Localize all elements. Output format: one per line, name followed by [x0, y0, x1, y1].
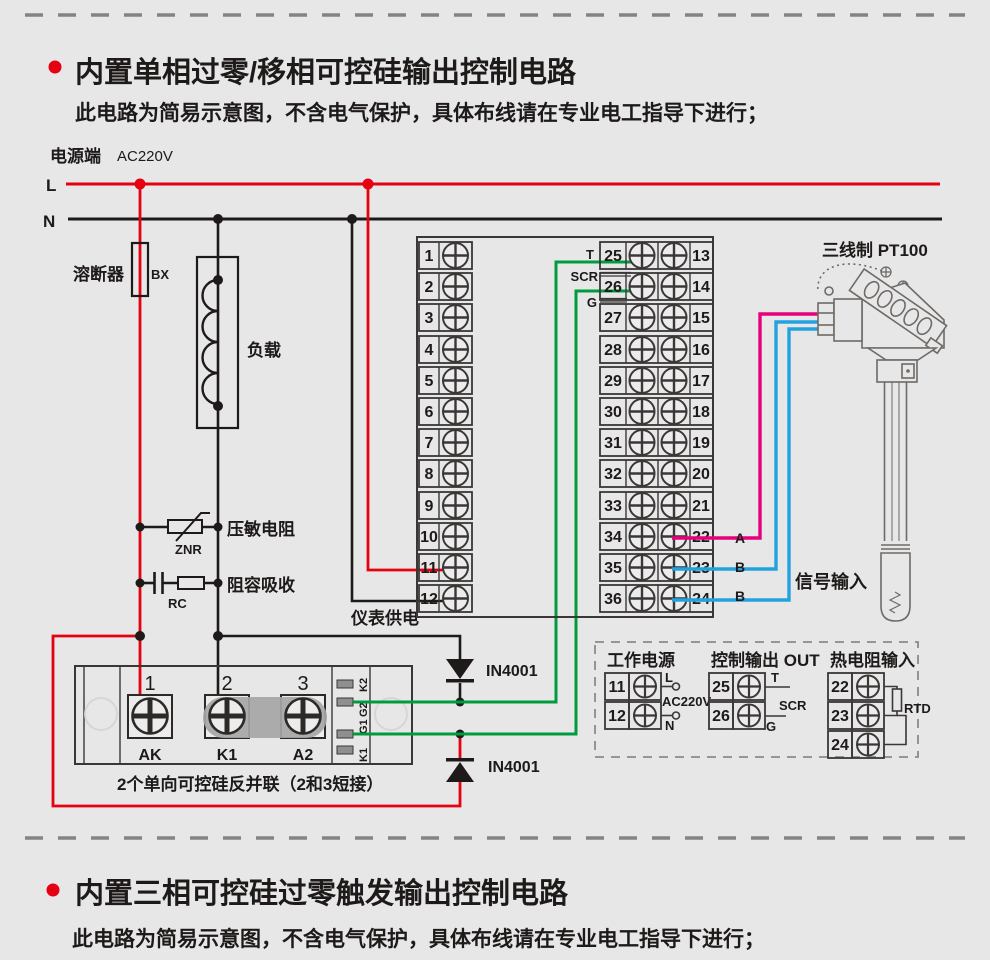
module-pin-a2: A2 [293, 747, 314, 764]
svg-text:31: 31 [604, 435, 622, 452]
varistor-label: 压敏电阻 [227, 519, 295, 539]
svg-text:20: 20 [692, 466, 710, 483]
varistor-code: ZNR [175, 542, 202, 557]
svg-text:9: 9 [425, 498, 434, 515]
label-g: G [587, 295, 597, 310]
section2-title: 内置三相可控硅过零触发输出控制电路 [75, 876, 569, 910]
wire-b1-label: B [735, 559, 745, 575]
legend-output: 控制输出 OUT 25 26 T SCR G [709, 650, 820, 734]
terminal-block: 12513 22614 32715 42816 52917 63018 7311… [417, 237, 713, 617]
bullet-icon [47, 884, 60, 897]
load-label: 负载 [247, 340, 281, 360]
svg-text:19: 19 [692, 435, 710, 452]
svg-text:6: 6 [425, 404, 434, 421]
section1-header: 内置单相过零/移相可控硅输出控制电路 此电路为简易示意图，不含电气保护，具体布线… [49, 55, 769, 125]
legend-power: 工作电源 11 12 L AC220V N [605, 650, 711, 733]
signal-input-label: 信号输入 [795, 571, 867, 592]
module-note: 2个单向可控硅反并联（2和3短接） [117, 774, 383, 794]
power-voltage-label: AC220V [117, 148, 173, 165]
legend-output-title: 控制输出 OUT [711, 650, 820, 670]
module-pin-ak: AK [138, 747, 162, 764]
svg-text:4: 4 [425, 342, 434, 359]
fuse-label: 溶断器 [73, 264, 125, 284]
svg-text:10: 10 [420, 529, 438, 546]
svg-text:25: 25 [604, 248, 622, 265]
svg-text:27: 27 [604, 310, 622, 327]
svg-text:13: 13 [692, 248, 710, 265]
legend-output-n2: 26 [712, 708, 730, 725]
wiring-diagram: 内置单相过零/移相可控硅输出控制电路 此电路为简易示意图，不含电气保护，具体布线… [0, 0, 990, 955]
label-t: T [586, 247, 594, 262]
legend-power-v: AC220V [662, 694, 711, 709]
junction-dots [135, 179, 465, 739]
load: 负载 [197, 257, 281, 428]
diode1: IN4001 [446, 659, 538, 683]
svg-text:16: 16 [692, 342, 710, 359]
svg-text:34: 34 [604, 529, 622, 546]
module-side-k2: K2 [358, 678, 370, 692]
svg-text:2: 2 [425, 279, 434, 296]
legend-rtd-title: 热电阻输入 [830, 650, 915, 670]
svg-text:7: 7 [425, 435, 434, 452]
varistor: ZNR 压敏电阻 [168, 513, 295, 557]
section1-subtitle: 此电路为简易示意图，不含电气保护，具体布线请在专业电工指导下进行； [75, 101, 768, 125]
svg-text:29: 29 [604, 373, 622, 390]
rc-code: RC [168, 596, 187, 611]
module-side-k1: K1 [358, 748, 370, 762]
legend-output-n1: 25 [712, 679, 730, 696]
legend-rtd: 热电阻输入 22 23 24 RTD [828, 650, 931, 758]
meter-supply-label: 仪表供电 [350, 608, 419, 628]
legend-rtd-n1: 22 [831, 679, 849, 696]
svg-text:15: 15 [692, 310, 710, 327]
scr-module: 1 2 3 AK K1 A2 K2 G2 G1 K1 2个单向可控硅反并联（2和… [75, 666, 412, 794]
fuse-code: BX [151, 267, 169, 282]
legend: 工作电源 11 12 L AC220V N 控制输出 OUT 25 26 T S… [595, 642, 931, 758]
pt100-sensor: 三线制 PT100 [818, 240, 953, 621]
svg-text:14: 14 [692, 279, 710, 296]
svg-text:8: 8 [425, 466, 434, 483]
svg-text:5: 5 [425, 373, 434, 390]
black-wiring [140, 219, 460, 716]
module-pin3: 3 [297, 673, 308, 695]
module-pin2: 2 [221, 673, 232, 695]
svg-text:3: 3 [425, 310, 434, 327]
svg-text:21: 21 [692, 498, 710, 515]
module-pin-k1: K1 [217, 747, 238, 764]
legend-output-scr: SCR [779, 698, 807, 713]
module-side-g2: G2 [358, 702, 370, 717]
legend-rtd-n2: 23 [831, 708, 849, 725]
mounting-hole-icon [85, 698, 117, 730]
svg-text:35: 35 [604, 560, 622, 577]
rtd-element-icon [890, 592, 900, 613]
svg-text:28: 28 [604, 342, 622, 359]
mains: 电源端 AC220V L N [43, 146, 942, 231]
svg-text:11: 11 [421, 560, 438, 577]
section2-header: 内置三相可控硅过零触发输出控制电路 此电路为简易示意图，不含电气保护，具体布线请… [47, 876, 766, 951]
svg-text:12: 12 [420, 591, 438, 608]
line-n-label: N [43, 212, 55, 231]
legend-power-title: 工作电源 [607, 650, 675, 670]
terminal-screws [443, 243, 687, 611]
inductor-coil-icon [203, 280, 219, 404]
svg-text:30: 30 [604, 404, 622, 421]
diode2-label: IN4001 [488, 759, 540, 776]
label-scr: SCR [571, 269, 599, 284]
legend-power-n: N [665, 718, 674, 733]
fuse: 溶断器 BX [73, 243, 169, 296]
bullet-icon [49, 61, 62, 74]
legend-output-t: T [771, 670, 779, 685]
legend-rtd-label: RTD [904, 701, 931, 716]
legend-power-n1: 11 [609, 679, 626, 696]
wire-b2-label: B [735, 588, 745, 604]
module-pin1: 1 [144, 673, 155, 695]
legend-power-n2: 12 [608, 708, 626, 725]
svg-text:18: 18 [692, 404, 710, 421]
svg-text:26: 26 [604, 279, 622, 296]
svg-text:32: 32 [604, 466, 622, 483]
diode1-label: IN4001 [486, 663, 538, 680]
rc-snubber: RC 阻容吸收 [155, 572, 296, 611]
module-side-g1: G1 [358, 719, 370, 734]
svg-text:36: 36 [604, 591, 622, 608]
legend-rtd-n3: 24 [831, 737, 849, 754]
svg-text:33: 33 [604, 498, 622, 515]
section1-title: 内置单相过零/移相可控硅输出控制电路 [75, 55, 577, 89]
rc-label: 阻容吸收 [227, 575, 295, 595]
section2-subtitle: 此电路为简易示意图，不含电气保护，具体布线请在专业电工指导下进行； [72, 927, 765, 951]
svg-text:1: 1 [425, 248, 434, 265]
svg-text:17: 17 [692, 373, 710, 390]
power-terminal-label: 电源端 [50, 146, 101, 166]
legend-output-g: G [766, 719, 776, 734]
legend-power-l: L [665, 670, 673, 685]
sensor-wire-labels: A B B 信号输入 [735, 530, 867, 604]
line-l-label: L [46, 176, 56, 195]
sensor-type-label: 三线制 PT100 [822, 240, 928, 260]
wire-a-label: A [735, 530, 745, 546]
diode2: IN4001 [446, 758, 540, 782]
